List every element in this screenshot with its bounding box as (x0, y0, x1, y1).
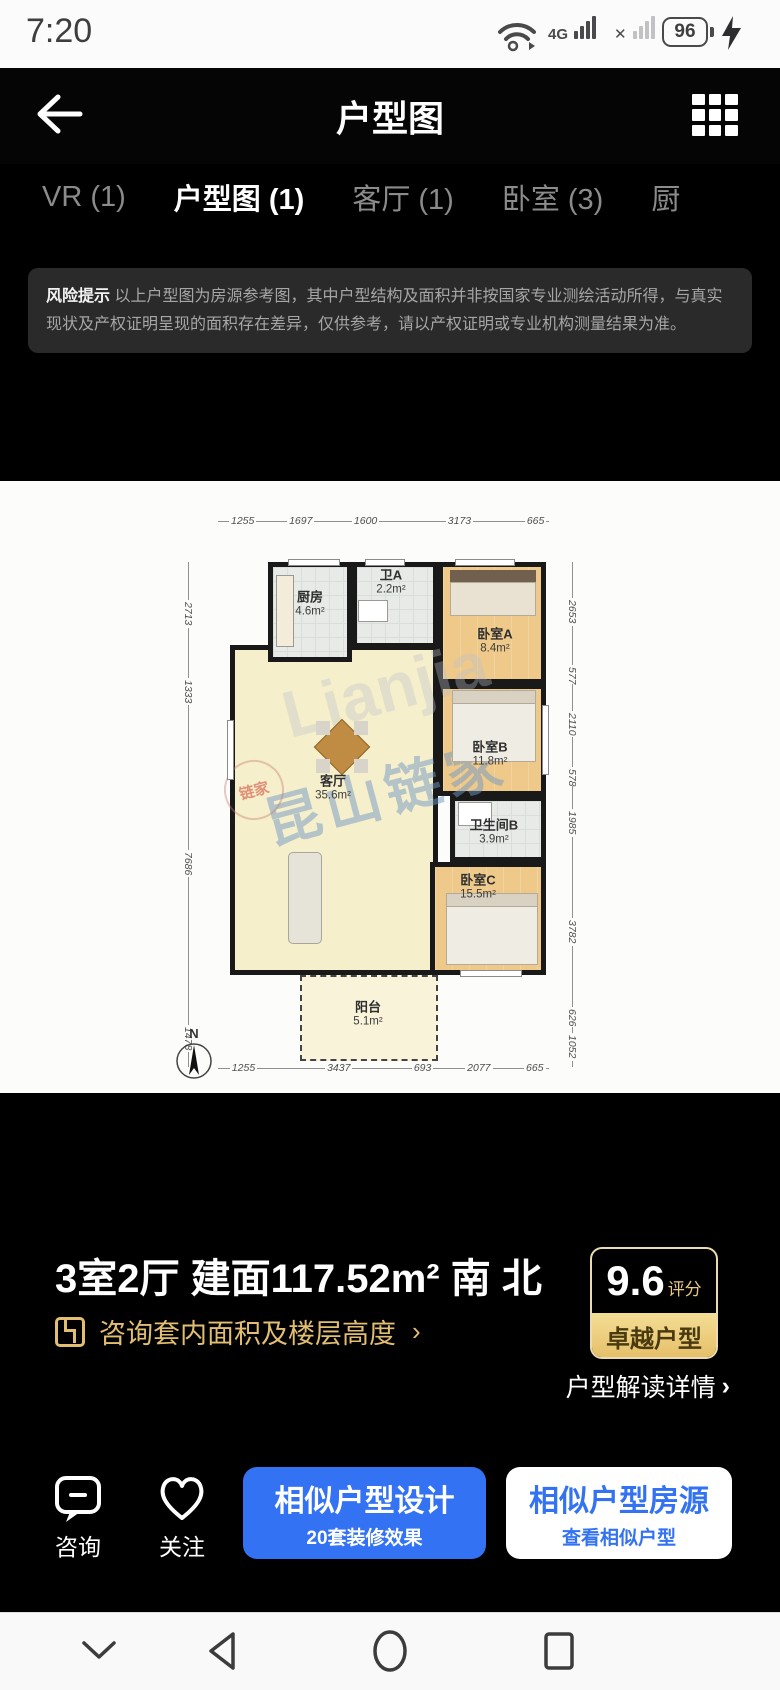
bed-b-pillows-icon (452, 690, 536, 704)
app-header: 户型图 (0, 68, 780, 164)
room-label: 厨房4.6m² (295, 587, 324, 618)
consult-area-label: 咨询套内面积及楼层高度 (99, 1312, 396, 1351)
charging-bolt-icon (718, 14, 744, 52)
battery-nub-icon (710, 27, 714, 37)
dimensions-bottom: 1255 3437 693 2077 665 (218, 1060, 548, 1076)
window-icon (460, 970, 522, 977)
floor-plan-image[interactable]: Lianjia 昆山链家 链家 (0, 481, 780, 1093)
tab-vr[interactable]: VR (1) (42, 181, 126, 214)
consult-area-link[interactable]: 咨询套内面积及楼层高度 › (55, 1312, 421, 1351)
room-label: 卧室C15.5m² (460, 870, 496, 901)
no-signal-icon: ✕ (614, 26, 627, 43)
window-icon (227, 720, 234, 780)
compass-north-label: N (172, 1026, 216, 1041)
sofa-icon (288, 852, 322, 944)
signal-bars-icon (574, 16, 596, 39)
window-icon (288, 559, 340, 566)
media-tabs: VR (1) 户型图 (1) 客厅 (1) 卧室 (3) 厨 (0, 164, 780, 230)
chair-icon (354, 759, 368, 773)
bed-c-icon (446, 907, 538, 965)
listing-summary-title: 3室2厅 建面117.52m² 南 北 (55, 1246, 585, 1304)
score-badge: 卓越户型 (592, 1313, 716, 1359)
recents-nav-icon[interactable] (542, 1630, 576, 1672)
floorplan-detail-link[interactable]: 户型解读详情 › (566, 1368, 730, 1404)
chevron-right-icon: › (722, 1372, 730, 1401)
washer-icon (358, 600, 388, 622)
floorplan-icon (55, 1317, 85, 1347)
room-label: 阳台5.1m² (353, 997, 382, 1028)
signal-bars-dim-icon (633, 16, 655, 39)
room-label: 卫生间B3.9m² (470, 815, 518, 846)
battery-icon: 96 (662, 17, 708, 47)
score-card: 9.6 评分 卓越户型 (590, 1247, 718, 1359)
tab-floorplan[interactable]: 户型图 (1) (174, 176, 305, 218)
sim2-no-signal: ✕ (614, 16, 655, 44)
room-label: 卫A2.2m² (376, 565, 405, 596)
clock: 7:20 (26, 12, 92, 51)
home-nav-icon[interactable] (371, 1628, 409, 1674)
dimensions-top: 1255 1697 1600 3173 665 (218, 513, 548, 529)
chat-icon[interactable] (52, 1472, 104, 1524)
page-title: 户型图 (0, 90, 780, 142)
score-label: 评分 (668, 1275, 702, 1300)
status-bar: 7:20 4G ✕ 96 (0, 0, 780, 68)
kitchen-counter-icon (276, 575, 294, 647)
tab-bedroom[interactable]: 卧室 (3) (502, 176, 604, 218)
wifi-icon (496, 20, 538, 52)
chevron-right-icon: › (412, 1316, 421, 1347)
tab-livingroom[interactable]: 客厅 (1) (352, 176, 454, 218)
similar-listing-button[interactable]: 相似户型房源 查看相似户型 (506, 1467, 732, 1559)
heart-icon[interactable] (156, 1472, 208, 1524)
room-label: 客厅35.6m² (315, 771, 351, 802)
room-label: 卧室B11.8m² (472, 737, 507, 768)
chair-icon (354, 721, 368, 735)
floorplan-detail-label: 户型解读详情 (566, 1368, 716, 1404)
risk-notice-label: 风险提示 (46, 288, 110, 305)
window-icon (542, 705, 549, 775)
compass: N (172, 1026, 216, 1090)
room-label: 卧室A8.4m² (477, 624, 512, 655)
dimensions-right: 2653 577 2110 578 1985 3782 626 1052 (562, 562, 582, 1067)
risk-notice: 风险提示 以上户型图为房源参考图，其中户型结构及面积并非按国家专业测绘活动所得，… (28, 268, 752, 353)
back-nav-icon[interactable] (205, 1630, 239, 1672)
chair-icon (316, 721, 330, 735)
score-value: 9.6 (606, 1257, 664, 1305)
window-icon (455, 559, 515, 566)
consult-button[interactable]: 咨询 (33, 1528, 123, 1562)
bed-a-headboard-icon (450, 570, 536, 582)
tab-kitchen[interactable]: 厨 (651, 176, 680, 218)
follow-button[interactable]: 关注 (137, 1528, 227, 1562)
risk-notice-text: 以上户型图为房源参考图，其中户型结构及面积并非按国家专业测绘活动所得，与真实现状… (46, 288, 722, 333)
dimensions-left: 2713 1333 7686 1478 (178, 562, 198, 1067)
similar-design-button[interactable]: 相似户型设计 20套装修效果 (243, 1467, 486, 1559)
sim1-network: 4G (548, 16, 596, 44)
bed-a-icon (450, 582, 536, 616)
hide-nav-chevron-icon[interactable] (80, 1638, 118, 1662)
phone-screen: 7:20 4G ✕ 96 户型 (0, 0, 780, 1690)
compass-needle-icon (174, 1041, 214, 1081)
grid-view-button[interactable] (692, 94, 738, 136)
